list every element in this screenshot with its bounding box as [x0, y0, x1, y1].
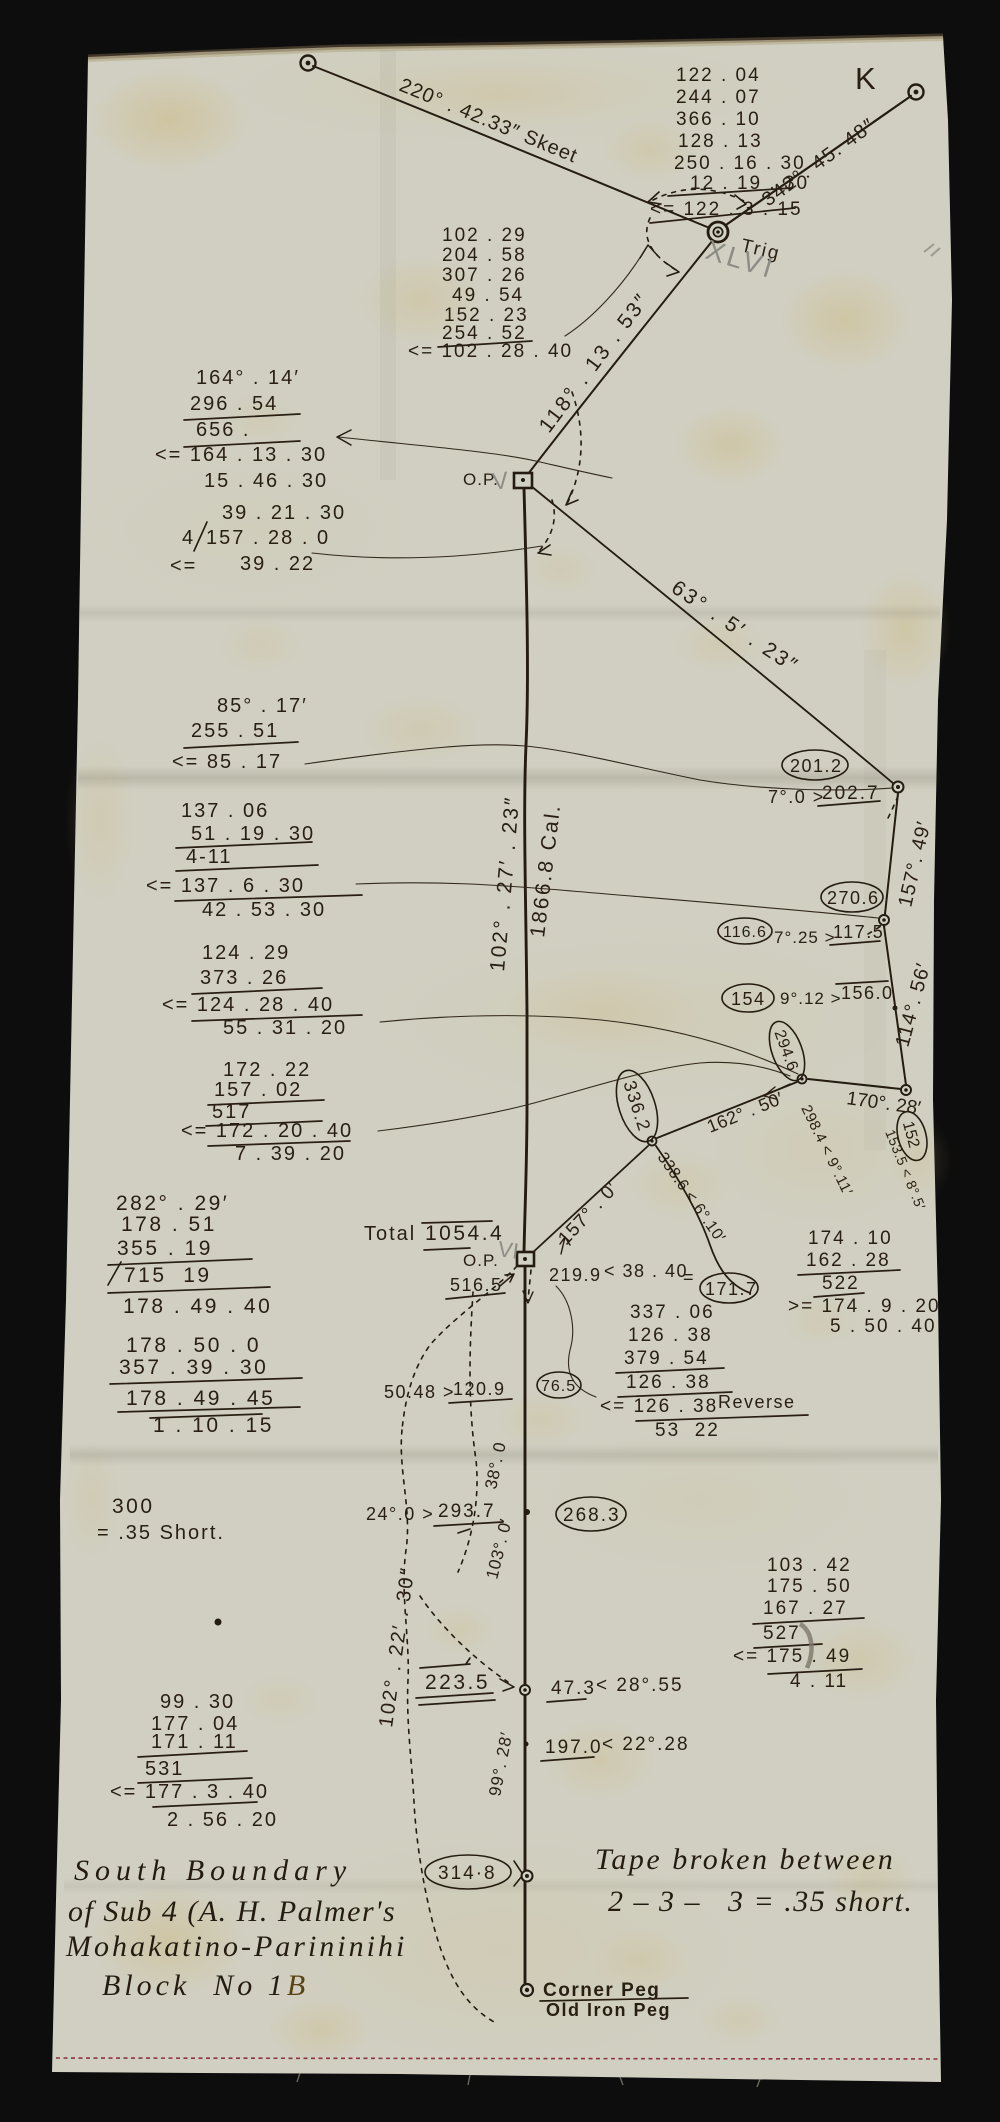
svg-text:= .35 Short.: = .35 Short. — [97, 1522, 225, 1544]
svg-text:Tape broken between: Tape broken between — [595, 1843, 895, 1876]
svg-text:307 . 26: 307 . 26 — [442, 265, 527, 286]
svg-text:1054.4: 1054.4 — [425, 1222, 504, 1245]
svg-text:178 . 49 . 40: 178 . 49 . 40 — [123, 1295, 272, 1318]
svg-text:175 . 50: 175 . 50 — [767, 1576, 852, 1597]
svg-text:>= 174 . 9 . 20: >= 174 . 9 . 20 — [788, 1296, 941, 1317]
svg-text:156.0: 156.0 — [841, 983, 894, 1003]
svg-text:<= 177 . 3 . 40: <= 177 . 3 . 40 — [110, 1781, 269, 1803]
svg-text:255 . 51: 255 . 51 — [191, 720, 279, 742]
svg-text:355 . 19: 355 . 19 — [117, 1237, 213, 1260]
svg-text:178 . 51: 178 . 51 — [121, 1213, 217, 1236]
svg-text:<= 85 . 17: <= 85 . 17 — [172, 751, 282, 773]
svg-text:2 . 56 . 20: 2 . 56 . 20 — [167, 1809, 278, 1831]
svg-text:42 . 53 . 30: 42 . 53 . 30 — [202, 899, 326, 921]
svg-text:201.2: 201.2 — [790, 756, 843, 776]
svg-text:O.P.: O.P. — [463, 1251, 499, 1270]
svg-text:366 . 10: 366 . 10 — [676, 109, 761, 130]
svg-text:K: K — [855, 61, 878, 96]
svg-text:47.3: 47.3 — [551, 1678, 596, 1699]
svg-text:V: V — [491, 467, 510, 496]
svg-text:4 . 11: 4 . 11 — [790, 1671, 848, 1692]
svg-text:516.5: 516.5 — [450, 1275, 503, 1295]
svg-text:VI: VI — [496, 1236, 520, 1264]
svg-text:171 . 11: 171 . 11 — [151, 1731, 238, 1753]
svg-text:51 . 19 . 30: 51 . 19 . 30 — [191, 823, 315, 845]
svg-text:124 . 29: 124 . 29 — [202, 942, 290, 964]
svg-text:137 . 06: 137 . 06 — [181, 800, 269, 822]
svg-text:7 . 39 . 20: 7 . 39 . 20 — [235, 1143, 346, 1165]
svg-text:85° . 17′: 85° . 17′ — [217, 695, 308, 717]
svg-text:Reverse: Reverse — [718, 1392, 796, 1412]
svg-text:296 . 54: 296 . 54 — [190, 393, 278, 415]
svg-text:178 . 49 . 45: 178 . 49 . 45 — [126, 1387, 275, 1410]
svg-text:Total: Total — [364, 1223, 416, 1245]
svg-text:197.0: 197.0 — [545, 1737, 603, 1758]
svg-text:49 . 54: 49 . 54 — [452, 285, 524, 306]
svg-text:< 22°.28: < 22°.28 — [602, 1734, 690, 1755]
svg-text:244 . 07: 244 . 07 — [676, 87, 761, 108]
svg-text:337 . 06: 337 . 06 — [630, 1302, 715, 1323]
svg-text:<= 137 . 6 . 30: <= 137 . 6 . 30 — [146, 875, 305, 897]
svg-text:174 . 10: 174 . 10 — [808, 1228, 893, 1249]
svg-text:39 . 22: 39 . 22 — [240, 553, 315, 575]
svg-text:103 . 42: 103 . 42 — [767, 1555, 852, 1576]
svg-text:202.7: 202.7 — [822, 783, 880, 804]
svg-text:172 . 22: 172 . 22 — [223, 1059, 311, 1081]
svg-text:268.3: 268.3 — [563, 1505, 621, 1526]
svg-text:293.7: 293.7 — [438, 1501, 496, 1522]
svg-text:< 28°.55: < 28°.55 — [596, 1675, 684, 1696]
svg-text:373 . 26: 373 . 26 — [200, 967, 288, 989]
svg-text:715 19: 715 19 — [124, 1264, 212, 1287]
svg-text:157 . 28 . 0: 157 . 28 . 0 — [206, 527, 330, 549]
svg-text:Corner Peg: Corner Peg — [543, 1980, 660, 2001]
svg-text:270.6: 270.6 — [827, 888, 880, 908]
svg-text:7°.25 >: 7°.25 > — [774, 928, 836, 947]
svg-text:126 . 38: 126 . 38 — [628, 1325, 713, 1346]
svg-text:522: 522 — [822, 1273, 860, 1294]
svg-text:of Sub 4 (A. H. Palmer's: of Sub 4 (A. H. Palmer's — [68, 1895, 396, 1928]
svg-text:531: 531 — [145, 1758, 184, 1780]
svg-text:167 . 27: 167 . 27 — [763, 1598, 848, 1619]
svg-text:300: 300 — [112, 1495, 155, 1518]
svg-text:379 . 54: 379 . 54 — [624, 1348, 709, 1369]
svg-text:Block No 1B: Block No 1B — [102, 1969, 309, 2002]
svg-text:<= 164 . 13 . 30: <= 164 . 13 . 30 — [155, 444, 327, 466]
svg-text:<= 102 . 28 . 40: <= 102 . 28 . 40 — [408, 341, 573, 362]
svg-text:2 – 3 – 3 = .35 short.: 2 – 3 – 3 = .35 short. — [608, 1885, 913, 1918]
svg-text:357 . 39 . 30: 357 . 39 . 30 — [119, 1356, 268, 1379]
svg-text:128 . 13: 128 . 13 — [678, 131, 763, 152]
svg-text:=: = — [683, 1267, 695, 1287]
svg-text:102 . 29: 102 . 29 — [442, 225, 527, 246]
svg-text:7°.0 >: 7°.0 > — [768, 787, 825, 807]
svg-text:178 . 50 . 0: 178 . 50 . 0 — [126, 1334, 261, 1357]
svg-text:120.9: 120.9 — [453, 1379, 506, 1399]
svg-text:171.7: 171.7 — [705, 1279, 758, 1299]
svg-text:<= 175 . 49: <= 175 . 49 — [733, 1646, 851, 1667]
svg-text:55 . 31 . 20: 55 . 31 . 20 — [223, 1017, 347, 1039]
svg-text:53 22: 53 22 — [655, 1420, 720, 1441]
svg-text:1 . 10 . 15: 1 . 10 . 15 — [153, 1414, 274, 1437]
svg-text:Mohakatino-Parininihi: Mohakatino-Parininihi — [65, 1930, 407, 1963]
svg-text:154: 154 — [731, 989, 766, 1009]
svg-text:126 . 38: 126 . 38 — [626, 1372, 711, 1393]
svg-text:656 .: 656 . — [196, 419, 250, 441]
svg-text:4: 4 — [182, 527, 195, 549]
svg-text:204 . 58: 204 . 58 — [442, 245, 527, 266]
svg-text:116.6: 116.6 — [723, 924, 767, 941]
svg-text:5 . 50 . 40: 5 . 50 . 40 — [830, 1316, 937, 1337]
svg-text:9°.12 >: 9°.12 > — [780, 989, 842, 1008]
svg-text:24°.0 >: 24°.0 > — [366, 1504, 434, 1524]
svg-text:<= 124 . 28 . 40: <= 124 . 28 . 40 — [162, 994, 334, 1016]
svg-text:<= 172 . 20 . 40: <= 172 . 20 . 40 — [181, 1120, 353, 1142]
svg-text:<=: <= — [170, 555, 197, 577]
svg-text:4-11: 4-11 — [186, 846, 233, 868]
svg-text:282° . 29′: 282° . 29′ — [116, 1192, 229, 1215]
svg-text:39 . 21 . 30: 39 . 21 . 30 — [222, 502, 346, 524]
svg-text:<= 126 . 38: <= 126 . 38 — [600, 1396, 718, 1417]
svg-text:162 . 28: 162 . 28 — [806, 1250, 891, 1271]
svg-text:99 . 30: 99 . 30 — [160, 1691, 235, 1713]
svg-text:164° . 14′: 164° . 14′ — [196, 367, 300, 389]
svg-text:117.5: 117.5 — [833, 922, 884, 942]
svg-text:223.5: 223.5 — [425, 1671, 490, 1694]
svg-text:157 . 02: 157 . 02 — [214, 1079, 302, 1101]
svg-text:76.5: 76.5 — [541, 1378, 576, 1395]
svg-text:314·8: 314·8 — [438, 1863, 497, 1884]
svg-text:250 . 16 . 30: 250 . 16 . 30 — [674, 153, 806, 174]
svg-text:Old Iron Peg: Old Iron Peg — [546, 2000, 671, 2020]
svg-text:South Boundary: South Boundary — [74, 1854, 352, 1887]
svg-text:< 38 . 40: < 38 . 40 — [604, 1261, 688, 1281]
svg-text:122 . 04: 122 . 04 — [676, 65, 761, 86]
svg-text:527: 527 — [763, 1623, 801, 1644]
svg-text:219.9: 219.9 — [549, 1265, 602, 1285]
svg-text:50.48 >: 50.48 > — [384, 1382, 455, 1402]
svg-text:15 . 46 . 30: 15 . 46 . 30 — [204, 470, 328, 492]
